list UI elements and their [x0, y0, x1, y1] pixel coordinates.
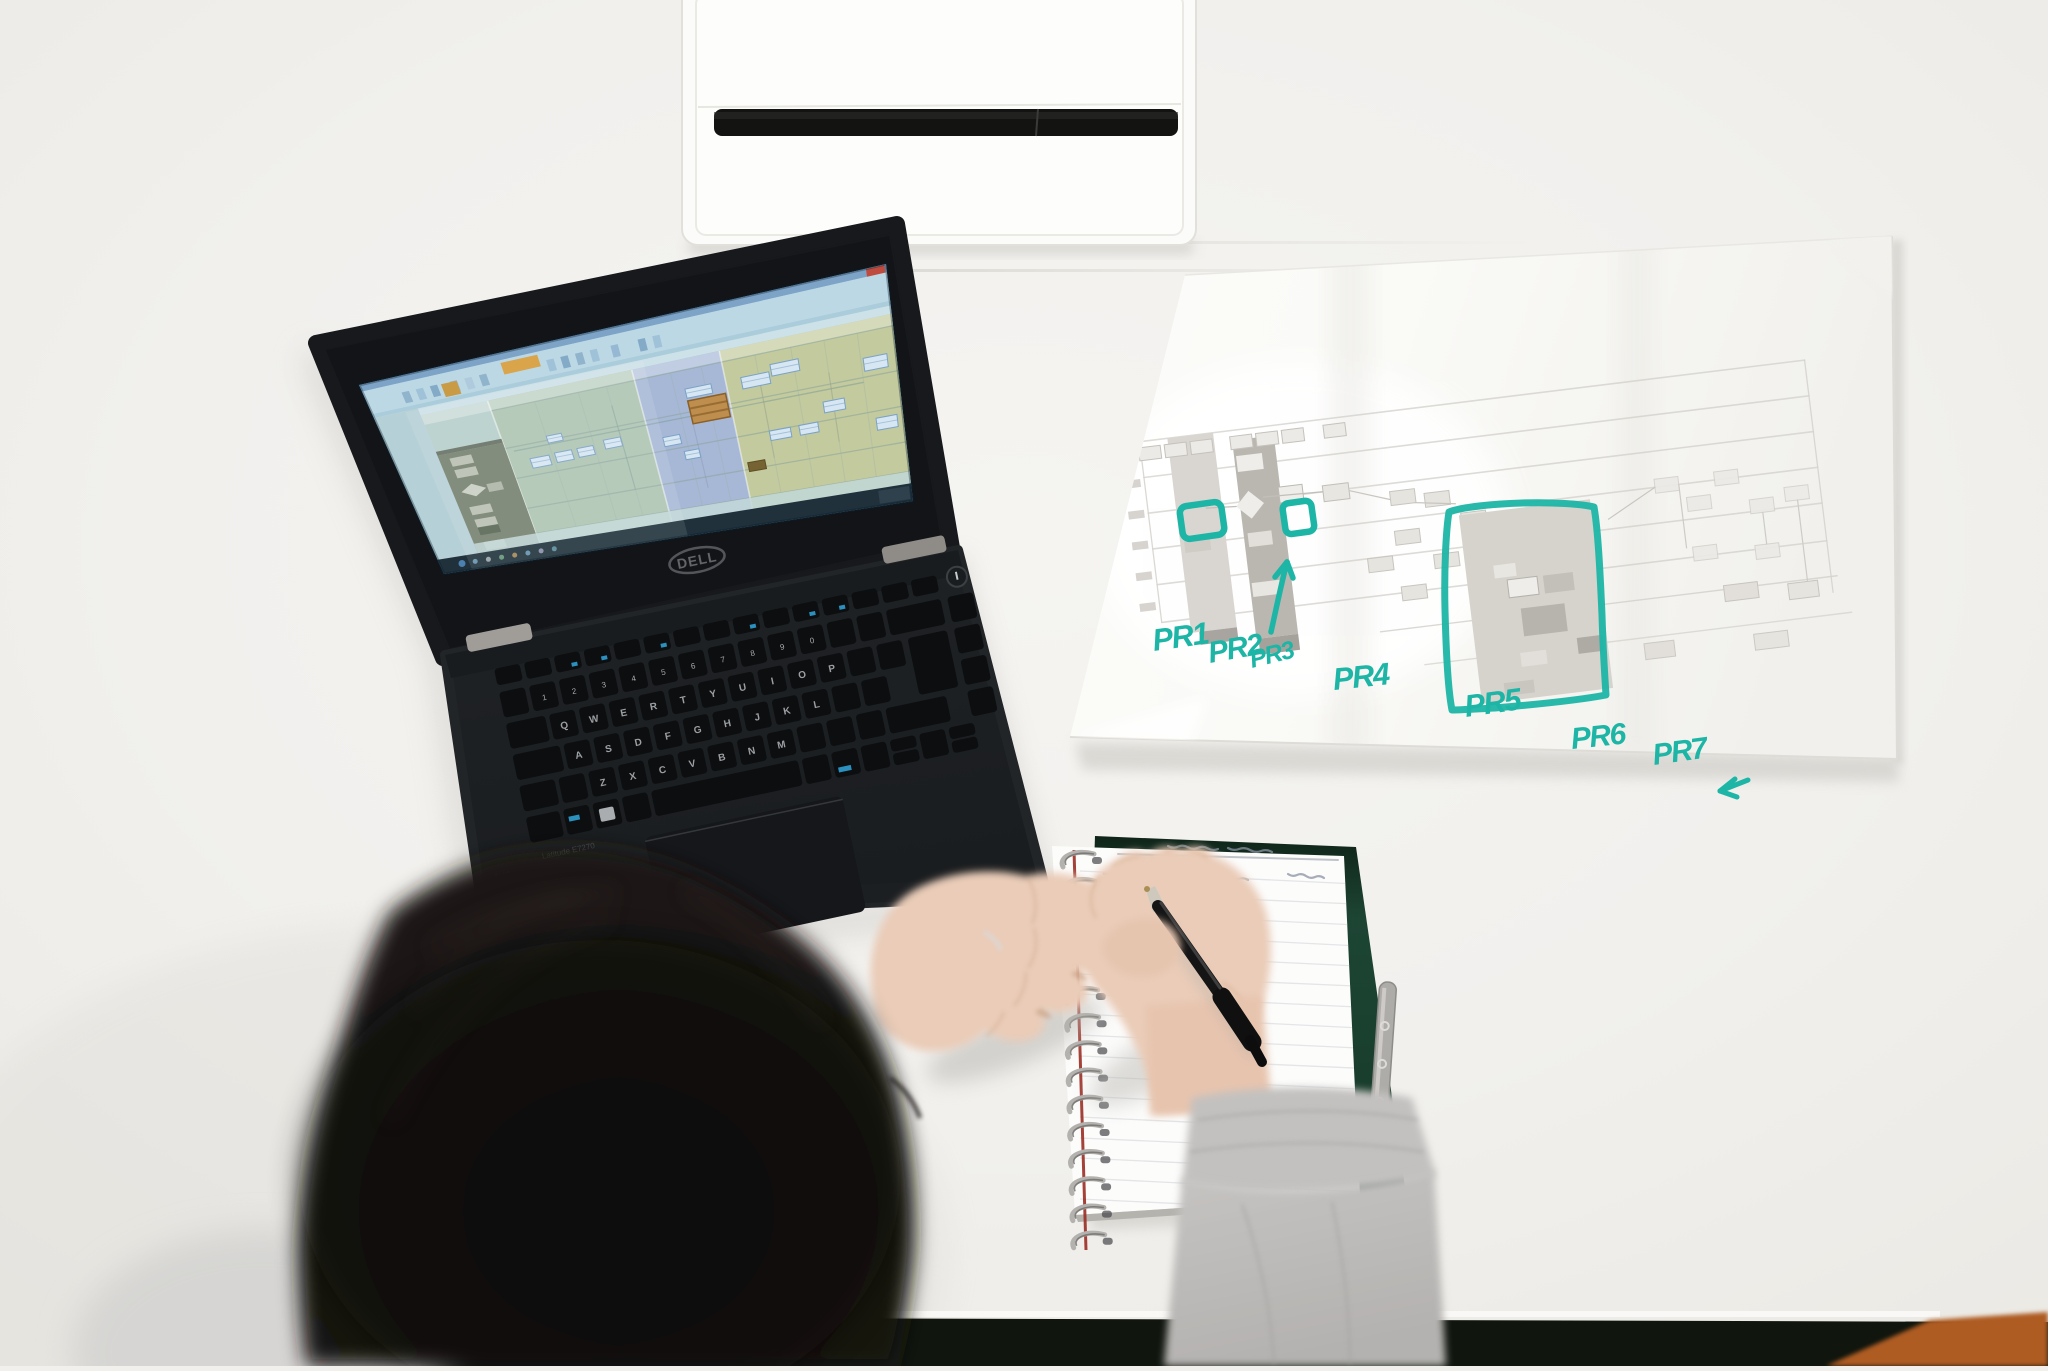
svg-text:PR4: PR4	[1331, 656, 1391, 697]
svg-text:PR6: PR6	[1569, 717, 1628, 756]
